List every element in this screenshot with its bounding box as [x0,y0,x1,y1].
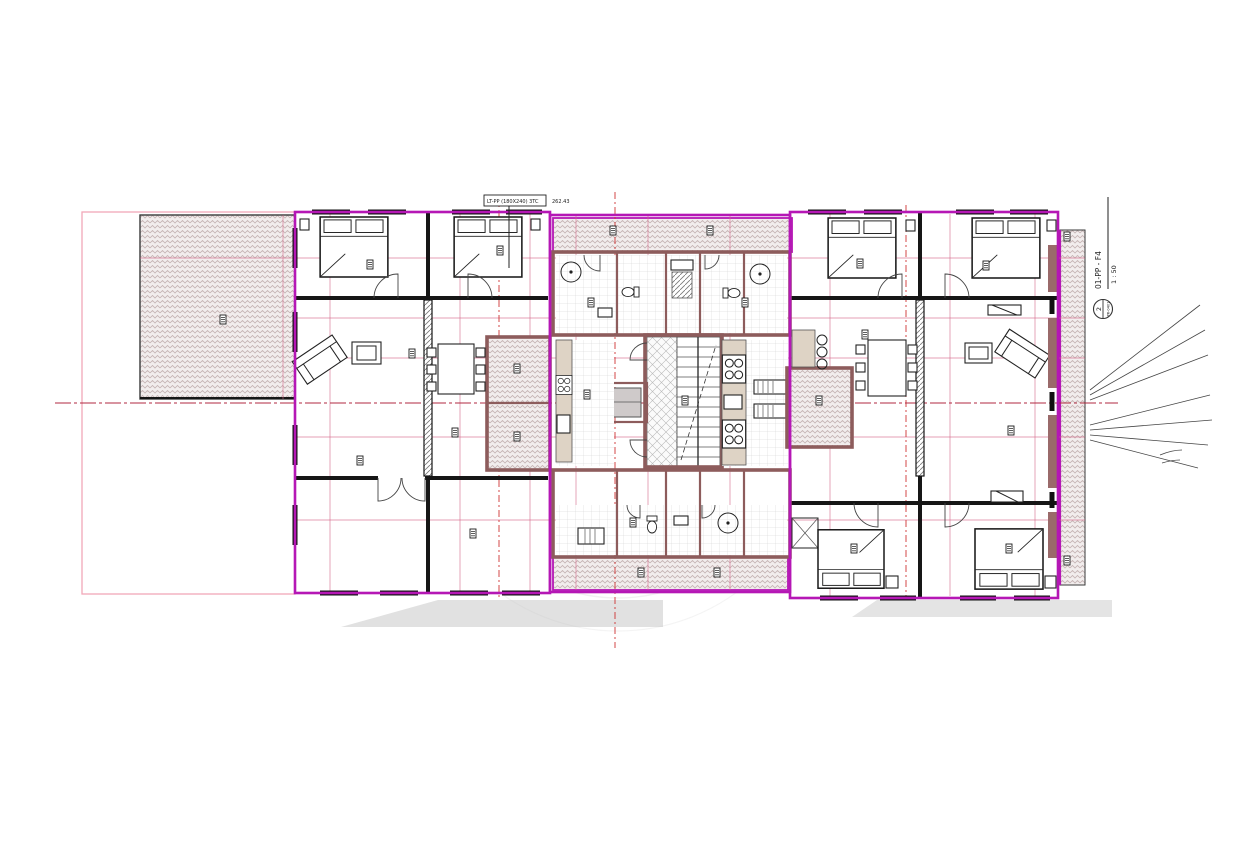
leader-fan [1090,305,1212,468]
nightstand [906,220,915,231]
toilet-icon [723,288,740,298]
wet-zone-top [553,252,790,335]
sheet-ref-text: PR-0401 [1107,302,1111,317]
title-label-text: LT-PP (180X240) 3TC [487,199,539,205]
sink-icon [671,260,693,270]
toilet-icon [647,516,657,533]
sink-icon [674,516,688,525]
top-balcony [553,218,792,252]
nightstand [886,576,898,588]
bed [975,529,1043,589]
nightstand [531,219,540,230]
nightstand [300,219,309,230]
toilet-icon [622,287,639,297]
stove-icon [722,420,745,448]
stove-icon [722,355,745,383]
view-marker: 01-PP - F4 1 : 50 2 PR-0401 [1094,197,1119,319]
floor-plan-canvas: LT-PP (180X240) 3TC 262.43 01-PP - F4 1 … [0,0,1235,851]
kitchen-left [556,340,614,466]
stove-icon [556,375,572,394]
sink-icon [598,308,612,317]
view-name-text: 01-PP - F4 [1094,251,1103,289]
left-terrace [140,215,298,399]
dining-table [427,344,485,394]
bed [828,218,896,278]
detail-number-text: 2 [1095,307,1103,311]
inset-terrace-right [787,368,852,447]
bed [454,217,522,277]
desk [991,491,1023,502]
bed [320,217,388,277]
dining-table [856,340,917,396]
coffee-table [965,343,992,363]
bottom-balcony [553,557,788,590]
inset-terrace-left [487,337,550,470]
ground-shadow [341,600,1112,627]
bed [972,218,1040,278]
sink-icon [557,415,570,433]
tv-cabinet [988,305,1021,315]
title-elevation-text: 262.43 [552,199,570,205]
right-balcony [1060,230,1085,585]
view-scale-text: 1 : 50 [1110,265,1118,284]
lobby-floor [647,337,677,467]
washing-machine-icon [578,528,604,544]
shaft [672,272,692,298]
detail-bubble: 2 PR-0401 [1094,300,1113,319]
coffee-table [352,342,381,364]
nightstand [1045,576,1056,588]
nightstand [1047,220,1056,231]
sink-icon [724,395,742,409]
bed [818,530,884,588]
kitchen-right [722,340,788,466]
